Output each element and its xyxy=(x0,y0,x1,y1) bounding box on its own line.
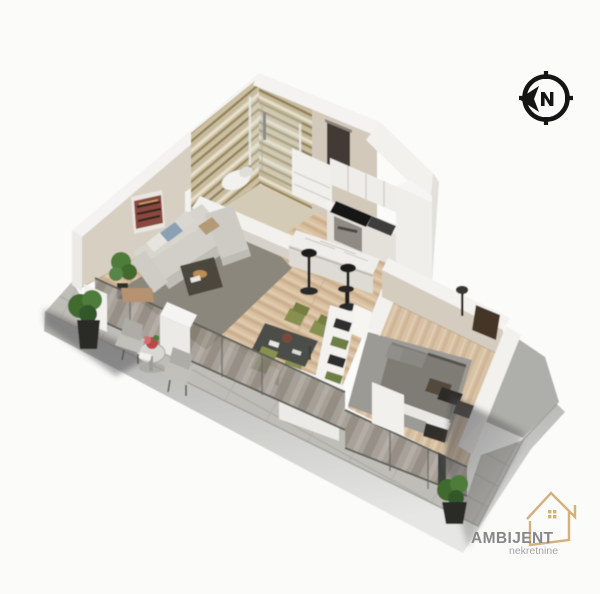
svg-text:nekretnine: nekretnine xyxy=(509,545,558,557)
